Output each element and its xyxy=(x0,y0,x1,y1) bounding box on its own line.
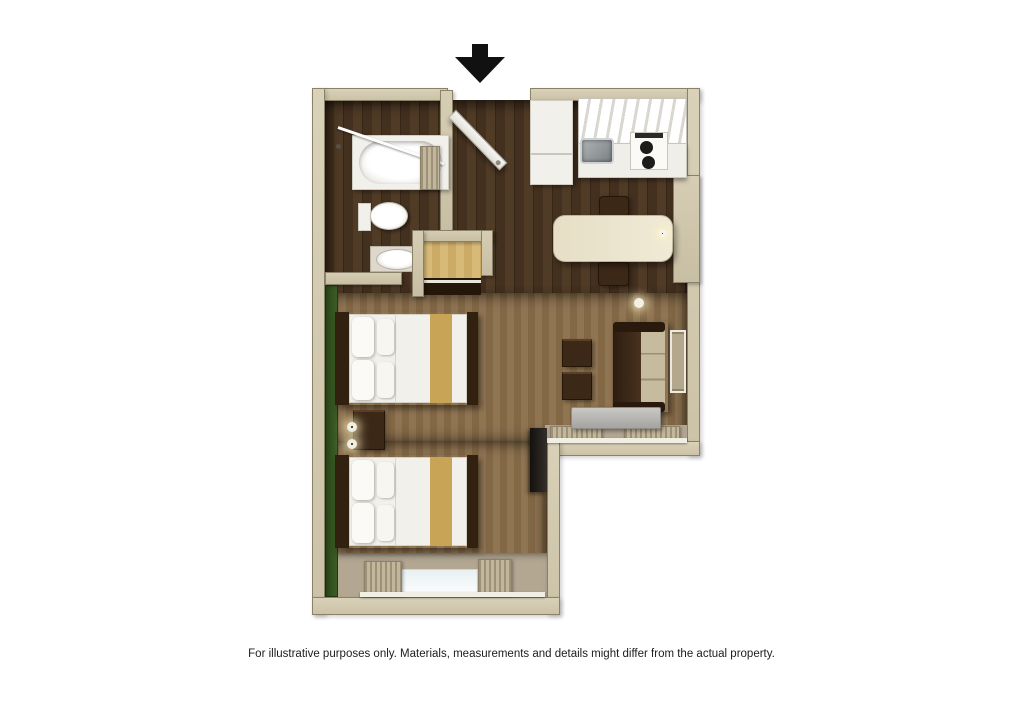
wall-mirror xyxy=(670,330,686,393)
bed-wall-lamp-1 xyxy=(347,422,357,432)
bed1-pillow-4 xyxy=(377,362,394,398)
closet-shelf xyxy=(424,242,481,278)
closet-wall-left xyxy=(412,230,424,297)
floor-plan-page: For illustrative purposes only. Material… xyxy=(0,0,1023,716)
stove-control-strip xyxy=(635,133,663,138)
bed2-pillow-2 xyxy=(352,503,374,543)
bed2-pillow-3 xyxy=(377,462,394,498)
bed2-pillow-1 xyxy=(352,460,374,500)
wall-mounted-tv xyxy=(530,428,547,492)
outer-wall-top-left xyxy=(312,88,448,101)
bed1-footboard xyxy=(467,312,478,405)
stove xyxy=(630,132,668,170)
floor-plan xyxy=(312,88,700,615)
closet xyxy=(412,230,493,297)
bed1-pillow-3 xyxy=(377,319,394,355)
dining-chair-top xyxy=(599,196,629,217)
arrow-head xyxy=(455,57,505,83)
entrance-arrow-down-icon xyxy=(455,44,505,84)
toilet-tank xyxy=(358,203,371,231)
ceiling-lamp xyxy=(634,298,644,308)
side-table-1 xyxy=(562,339,592,367)
outer-wall-step xyxy=(547,441,560,615)
bed2-duvet-fold xyxy=(395,457,396,546)
dining-table xyxy=(553,215,673,262)
shower-curtain-bunched xyxy=(420,146,440,190)
bed1-pillow-2 xyxy=(352,360,374,400)
bed2-footboard xyxy=(467,455,478,548)
closet-wall-right xyxy=(481,230,493,276)
bed1-pillow-1 xyxy=(352,317,374,357)
ac-unit xyxy=(571,407,661,429)
door-handle xyxy=(495,159,502,166)
double-bed-2 xyxy=(335,455,478,548)
outer-wall-bottom xyxy=(312,597,560,615)
side-table-2 xyxy=(562,372,592,400)
nightstand xyxy=(353,410,385,450)
sitting-window-sill xyxy=(545,438,687,443)
bedroom-window-sill xyxy=(360,592,545,597)
double-bed-1 xyxy=(335,312,478,405)
bed1-duvet-fold xyxy=(395,314,396,403)
kitchen-side-column xyxy=(673,175,700,283)
dining-wall-sconce-light xyxy=(658,229,667,238)
sofa xyxy=(613,322,668,412)
bedroom-curtain-right xyxy=(478,559,512,595)
burner-2 xyxy=(642,156,655,169)
bed1-runner-gold xyxy=(430,314,452,403)
outer-wall-sitting-bottom xyxy=(547,441,700,456)
bathroom-bottom-wall xyxy=(325,272,402,285)
sofa-cushions xyxy=(641,328,665,406)
dining-chair-bottom xyxy=(598,262,629,286)
outer-wall-left xyxy=(312,88,325,615)
toilet-bowl xyxy=(370,202,408,230)
kitchen-sink xyxy=(580,138,614,164)
bed2-headboard xyxy=(335,455,349,548)
bed-wall-lamp-2 xyxy=(347,439,357,449)
burner-1 xyxy=(640,141,653,154)
disclaimer-caption: For illustrative purposes only. Material… xyxy=(0,648,1023,660)
refrigerator-door-line xyxy=(531,153,572,155)
bed1-headboard xyxy=(335,312,349,405)
tub-faucet xyxy=(336,144,341,149)
bedroom-curtain-left xyxy=(364,561,402,595)
bed2-runner-gold xyxy=(430,457,452,546)
sofa-back xyxy=(613,322,643,412)
closet-hanging-rod xyxy=(424,280,481,283)
bed2-pillow-4 xyxy=(377,505,394,541)
sofa-armrest-top xyxy=(613,322,665,332)
refrigerator xyxy=(530,100,573,185)
